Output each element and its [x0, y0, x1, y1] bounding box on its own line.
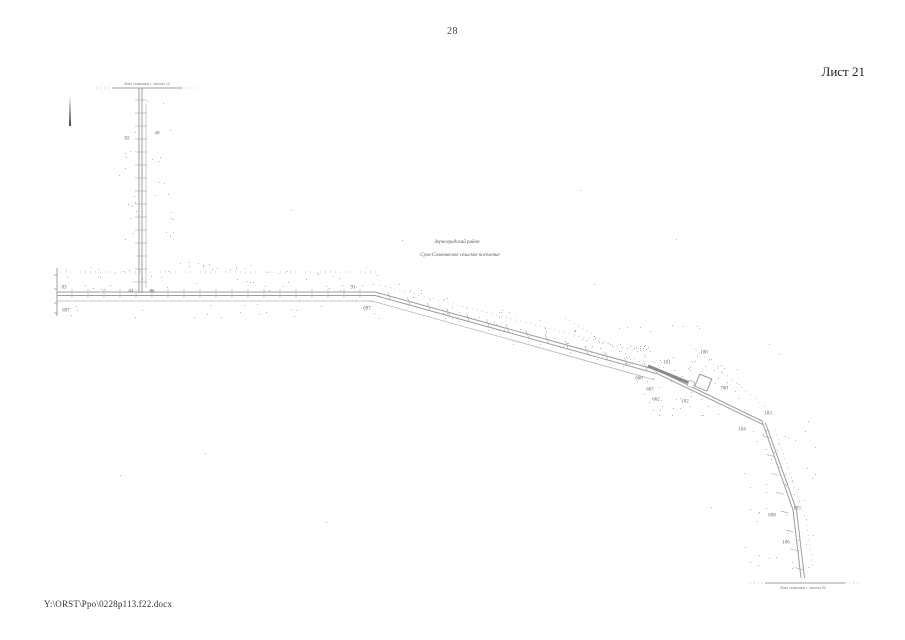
survey-dot — [788, 438, 789, 439]
survey-dot — [568, 343, 569, 344]
survey-dot — [105, 289, 106, 290]
survey-dot — [777, 450, 778, 451]
survey-dot — [637, 381, 638, 382]
survey-dot — [168, 271, 169, 272]
survey-dot — [673, 408, 674, 409]
survey-dot — [758, 565, 759, 566]
survey-dot — [727, 382, 728, 383]
pipeline-lines — [54, 88, 860, 583]
survey-dot — [129, 270, 130, 271]
survey-dot — [663, 367, 664, 368]
survey-dot — [627, 327, 628, 328]
survey-dot — [189, 262, 190, 263]
survey-dot — [364, 310, 365, 311]
survey-dot — [709, 359, 710, 360]
survey-dot — [627, 348, 628, 349]
survey-dot — [645, 357, 646, 358]
survey-dot — [402, 240, 403, 241]
survey-dot — [586, 340, 587, 341]
point-label: 662 — [652, 398, 660, 403]
survey-dot — [766, 484, 767, 485]
survey-dot — [457, 317, 458, 318]
survey-dot — [701, 415, 702, 416]
survey-dot — [499, 312, 500, 313]
survey-dot — [356, 300, 357, 301]
survey-dot — [479, 317, 480, 318]
survey-dot — [692, 362, 693, 363]
survey-dot — [612, 346, 613, 347]
survey-dot — [794, 523, 795, 524]
survey-dot — [212, 269, 213, 270]
survey-dot — [676, 239, 677, 240]
survey-dot — [209, 264, 210, 265]
survey-dot — [296, 310, 297, 311]
survey-dot — [67, 277, 68, 278]
survey-dot — [161, 277, 162, 278]
survey-dot — [410, 290, 411, 291]
survey-dot — [705, 366, 706, 367]
survey-dot — [452, 318, 453, 319]
survey-dot — [210, 305, 211, 306]
point-label: 83 — [62, 286, 67, 291]
survey-dot — [763, 434, 764, 435]
survey-dot — [459, 312, 460, 313]
survey-dot — [788, 530, 789, 531]
point-label: 667 — [646, 388, 654, 393]
survey-dot — [682, 376, 683, 377]
survey-dot — [735, 391, 736, 392]
survey-dot — [779, 354, 780, 355]
survey-dot — [806, 544, 807, 545]
survey-dot — [649, 371, 650, 372]
survey-dot — [727, 386, 728, 387]
point-label: 700 — [720, 387, 728, 392]
survey-dot — [688, 368, 689, 369]
survey-dot — [808, 421, 809, 422]
survey-dot — [291, 210, 292, 211]
point-label: 697 — [62, 309, 70, 314]
point-label: 86 — [150, 290, 155, 295]
survey-dot — [815, 447, 816, 448]
survey-dot — [650, 331, 651, 332]
survey-dot — [679, 381, 680, 382]
survey-dot — [98, 276, 99, 277]
survey-dot — [462, 316, 463, 317]
survey-dot — [159, 161, 160, 162]
survey-dot — [545, 328, 546, 329]
survey-dot — [133, 281, 134, 282]
survey-dot — [119, 175, 120, 176]
survey-dot — [167, 287, 168, 288]
survey-dot — [306, 279, 307, 280]
survey-dot — [697, 356, 698, 357]
survey-dot — [798, 550, 799, 551]
survey-dot — [690, 406, 691, 407]
survey-dot — [785, 474, 786, 475]
survey-dot — [430, 299, 431, 300]
survey-dot — [671, 381, 672, 382]
survey-dot — [135, 132, 136, 133]
survey-dot — [120, 475, 121, 476]
survey-dot — [626, 357, 627, 358]
survey-dot — [513, 344, 514, 345]
survey-dot — [125, 153, 126, 154]
survey-dot — [808, 567, 809, 568]
survey-dot — [545, 334, 546, 335]
survey-dot — [792, 562, 793, 563]
survey-dot — [691, 392, 692, 393]
survey-dot — [444, 299, 445, 300]
survey-dot — [804, 500, 805, 501]
point-label: 698 — [768, 514, 776, 519]
survey-dot — [662, 406, 663, 407]
survey-dot — [253, 282, 254, 283]
survey-dot — [815, 474, 816, 475]
survey-dot — [240, 312, 241, 313]
survey-dot — [644, 394, 645, 395]
survey-dot — [711, 507, 712, 508]
point-label: 106 — [782, 541, 790, 546]
survey-dot — [636, 347, 637, 348]
survey-dot — [496, 324, 497, 325]
survey-dot — [782, 511, 783, 512]
survey-dot — [594, 284, 595, 285]
survey-dot — [697, 326, 698, 327]
survey-dot — [196, 283, 197, 284]
survey-dot — [806, 519, 807, 520]
survey-dot — [766, 492, 767, 493]
point-label: 49 — [155, 132, 160, 137]
survey-dot — [134, 273, 135, 274]
survey-dot — [288, 282, 289, 283]
survey-dot — [738, 398, 739, 399]
survey-dot — [540, 320, 541, 321]
survey-dot — [629, 364, 630, 365]
survey-dot — [563, 346, 564, 347]
survey-dot — [745, 547, 746, 548]
survey-dot — [138, 194, 139, 195]
survey-dot — [744, 473, 745, 474]
survey-dot — [173, 232, 174, 233]
survey-dot — [640, 346, 641, 347]
survey-dot — [443, 313, 444, 314]
survey-dot — [170, 236, 171, 237]
survey-dot — [339, 278, 340, 279]
survey-dot — [447, 298, 448, 299]
survey-dot — [399, 284, 400, 285]
survey-dot — [76, 306, 77, 307]
region-label-settlement: Сухо-Соленовское сельское поселение — [420, 253, 499, 258]
survey-dot — [283, 286, 284, 287]
survey-dot — [499, 317, 500, 318]
survey-dot — [171, 212, 172, 213]
survey-dot — [250, 282, 251, 283]
point-label: 101 — [663, 361, 671, 366]
survey-dot — [714, 370, 715, 371]
point-label: 84 — [129, 290, 134, 295]
survey-dot — [656, 372, 657, 373]
survey-dot — [362, 285, 363, 286]
survey-dot — [152, 159, 153, 160]
survey-dot — [329, 288, 330, 289]
survey-dot — [711, 359, 712, 360]
survey-dot — [812, 478, 813, 479]
survey-dot — [690, 367, 691, 368]
survey-dot — [602, 355, 603, 356]
survey-dot — [205, 453, 206, 454]
survey-dot — [481, 321, 482, 322]
survey-dot — [653, 410, 654, 411]
survey-dot — [794, 494, 795, 495]
survey-dot — [458, 321, 459, 322]
survey-dot — [640, 327, 641, 328]
point-label: 104 — [738, 428, 746, 433]
survey-dot — [155, 195, 156, 196]
survey-dot — [703, 415, 704, 416]
route-plan-drawing — [0, 0, 905, 640]
survey-dot — [269, 290, 270, 291]
survey-dot — [259, 314, 260, 315]
survey-dot — [413, 297, 414, 298]
survey-dot — [406, 303, 407, 304]
survey-dot — [151, 276, 152, 277]
survey-dot — [771, 459, 772, 460]
survey-dot — [168, 194, 169, 195]
survey-dot — [695, 361, 696, 362]
survey-dot — [594, 336, 595, 337]
survey-dot — [610, 344, 611, 345]
survey-dot — [409, 292, 410, 293]
survey-dot — [691, 396, 692, 397]
survey-dot — [766, 449, 767, 450]
survey-dot — [690, 370, 691, 371]
survey-dot — [207, 314, 208, 315]
survey-dot — [135, 317, 136, 318]
survey-dot — [813, 535, 814, 536]
survey-dot — [659, 387, 660, 388]
survey-dot — [787, 483, 788, 484]
survey-dot — [377, 275, 378, 276]
survey-dot — [371, 301, 372, 302]
survey-dot — [130, 151, 131, 152]
survey-dot — [715, 383, 716, 384]
survey-dot — [198, 263, 199, 264]
survey-dot — [142, 279, 143, 280]
survey-dot — [421, 293, 422, 294]
survey-dot — [640, 350, 641, 351]
survey-dot — [721, 372, 722, 373]
survey-dot — [93, 288, 94, 289]
survey-dot — [142, 172, 143, 173]
survey-dot — [701, 395, 702, 396]
survey-dot — [640, 348, 641, 349]
survey-dot — [627, 358, 628, 359]
survey-dot — [673, 357, 674, 358]
survey-dot — [230, 269, 231, 270]
survey-dot — [585, 346, 586, 347]
survey-dot — [753, 431, 754, 432]
survey-dot — [374, 313, 375, 314]
survey-dot — [163, 103, 164, 104]
survey-dot — [560, 347, 561, 348]
survey-dot — [570, 352, 571, 353]
survey-dot — [326, 522, 327, 523]
survey-dot — [721, 365, 722, 366]
survey-dot — [717, 366, 718, 367]
survey-dot — [649, 402, 650, 403]
survey-dot — [141, 201, 142, 202]
survey-dot — [792, 480, 793, 481]
survey-dot — [759, 555, 760, 556]
bottom-edge-label: Зона стыковки с листом 22 — [780, 585, 826, 590]
survey-dot — [291, 309, 292, 310]
survey-dot — [98, 269, 99, 270]
survey-dot — [194, 317, 195, 318]
survey-dot — [575, 331, 576, 332]
survey-dot — [795, 440, 796, 441]
point-label: 82 — [125, 137, 130, 142]
survey-dot — [101, 289, 102, 290]
survey-dot — [672, 325, 673, 326]
survey-dot — [244, 305, 245, 306]
survey-dot — [597, 359, 598, 360]
top-edge-label: Зона стыковки с листом 12 — [124, 81, 170, 86]
survey-dot — [660, 410, 661, 411]
survey-dot — [217, 268, 218, 269]
survey-dot — [758, 513, 759, 514]
survey-dot — [170, 130, 171, 131]
survey-dot — [708, 406, 709, 407]
survey-dot — [318, 274, 319, 275]
point-label: 100 — [700, 351, 708, 356]
survey-dot — [750, 509, 751, 510]
survey-dot — [724, 368, 725, 369]
survey-dot — [650, 351, 651, 352]
point-label: 91 — [351, 286, 356, 291]
survey-dot — [739, 384, 740, 385]
survey-dot — [757, 441, 758, 442]
survey-dot — [77, 310, 78, 311]
survey-dot — [643, 348, 644, 349]
region-label-district: Зерноградский район — [435, 240, 480, 245]
survey-dot — [699, 328, 700, 329]
survey-dot — [500, 334, 501, 335]
survey-dot — [792, 568, 793, 569]
survey-dot — [221, 317, 222, 318]
survey-dot — [361, 308, 362, 309]
survey-dot — [646, 349, 647, 350]
survey-dot — [136, 211, 137, 212]
survey-dot — [494, 322, 495, 323]
survey-dot — [626, 363, 627, 364]
survey-dot — [683, 326, 684, 327]
survey-dot — [142, 278, 143, 279]
survey-dot — [595, 338, 596, 339]
survey-dot — [779, 467, 780, 468]
survey-dot — [757, 521, 758, 522]
pipeline-ticks — [72, 100, 803, 570]
point-label: 105 — [793, 507, 801, 512]
survey-dot — [91, 267, 92, 268]
survey-dot — [580, 190, 581, 191]
survey-dot — [278, 273, 279, 274]
survey-dot — [661, 400, 662, 401]
survey-dot — [321, 306, 322, 307]
survey-dot — [778, 443, 779, 444]
survey-dot — [659, 415, 660, 416]
survey-dot — [582, 339, 583, 340]
survey-dot — [796, 506, 797, 507]
survey-dot — [602, 343, 603, 344]
survey-dot — [166, 232, 167, 233]
survey-dot — [769, 344, 770, 345]
survey-dot — [159, 182, 160, 183]
survey-dot — [672, 415, 673, 416]
survey-dot — [247, 281, 248, 282]
survey-dot — [140, 269, 141, 270]
survey-dot — [680, 398, 681, 399]
survey-dot — [171, 218, 172, 219]
survey-dot — [668, 359, 669, 360]
survey-dot — [71, 315, 72, 316]
survey-dot — [180, 263, 181, 264]
survey-dot — [133, 233, 134, 234]
survey-dot — [702, 371, 703, 372]
survey-dot — [648, 347, 649, 348]
survey-dot — [680, 408, 681, 409]
survey-dot — [620, 344, 621, 345]
survey-dot — [294, 316, 295, 317]
survey-dot — [619, 351, 620, 352]
survey-dot — [609, 364, 610, 365]
survey-dot — [287, 271, 288, 272]
survey-dot — [718, 378, 719, 379]
survey-dot — [128, 204, 129, 205]
survey-dot — [126, 157, 127, 158]
survey-dot — [676, 399, 677, 400]
survey-dot — [447, 313, 448, 314]
survey-dot — [807, 468, 808, 469]
survey-dot — [409, 305, 410, 306]
survey-dot — [750, 562, 751, 563]
survey-dot — [509, 312, 510, 313]
survey-dot — [245, 268, 246, 269]
survey-dot — [135, 202, 136, 203]
survey-dot — [236, 267, 237, 268]
survey-dot — [554, 338, 555, 339]
survey-dot — [251, 265, 252, 266]
survey-dot — [798, 489, 799, 490]
survey-dot — [488, 330, 489, 331]
survey-dot — [622, 347, 623, 348]
survey-dot — [766, 430, 767, 431]
survey-dot — [645, 345, 646, 346]
survey-dot — [333, 276, 334, 277]
survey-dot — [540, 344, 541, 345]
survey-dot — [236, 269, 237, 270]
survey-dot — [766, 508, 767, 509]
survey-dot — [123, 271, 124, 272]
survey-dot — [623, 366, 624, 367]
survey-dot — [326, 286, 327, 287]
survey-dot — [546, 331, 547, 332]
survey-dot — [203, 266, 204, 267]
survey-dot — [452, 307, 453, 308]
survey-dot — [134, 196, 135, 197]
survey-dot — [132, 206, 133, 207]
survey-dot — [85, 285, 86, 286]
survey-dot — [701, 399, 702, 400]
